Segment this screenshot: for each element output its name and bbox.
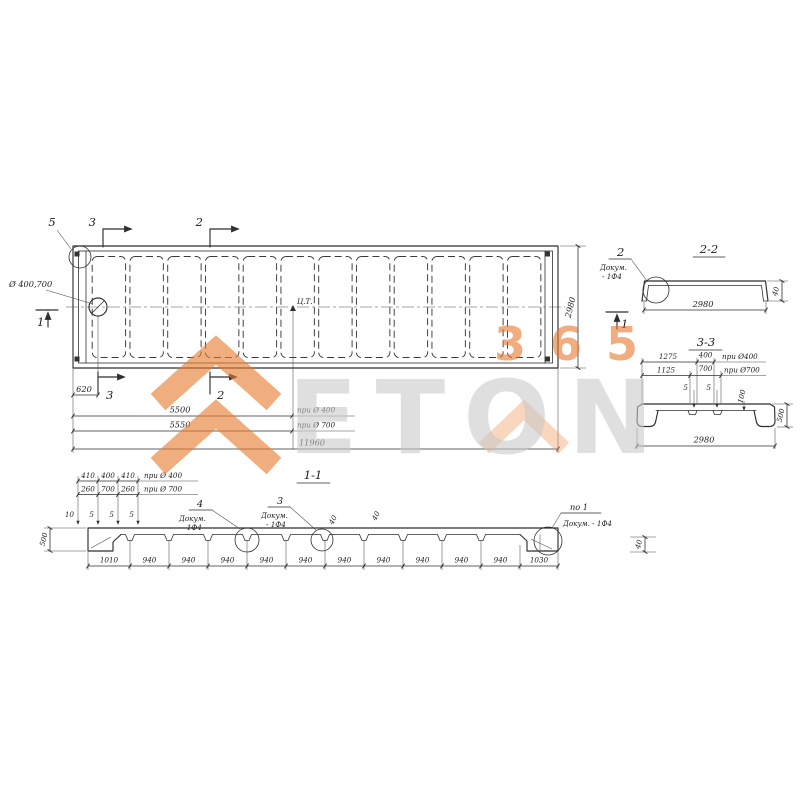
watermark-brand-text: ETON (288, 359, 671, 478)
bottom-dim-2: 940 (182, 556, 196, 565)
section-2-2-title: 2-2 (699, 242, 719, 256)
dim-700-s33: 700 (699, 364, 713, 373)
dim-edge-s22: 40 (770, 285, 782, 298)
bottom-dim-10: 940 (494, 556, 508, 565)
section-2-top-label: 2 (195, 215, 203, 229)
dim-260-a: 260 (80, 485, 95, 494)
dim-500-s11: 500 (38, 531, 50, 547)
section-flag-3-bottom: 3 (98, 372, 124, 402)
dim-edge-s11: 40 (633, 538, 645, 551)
dim-260-b: 260 (120, 485, 135, 494)
callout-4-label: 4 (196, 499, 203, 510)
callout-3-label: 3 (277, 496, 283, 507)
bottom-dim-9: 940 (455, 556, 469, 565)
drawing-svg: Ø 400,700 Ц.Т. 5 3 2 1 (0, 0, 800, 800)
section-3-bottom-label: 3 (106, 388, 113, 402)
section-2-2-callout: 2 Докум. - 1Ф4 (599, 245, 669, 303)
plan-lifting-anchors (75, 252, 551, 362)
callout-3-doc2: - 1Ф4 (266, 520, 286, 529)
dim-5-left-s33: 5 (683, 383, 688, 392)
bottom-dim-5: 940 (299, 556, 313, 565)
section-2-2-profile (642, 281, 768, 301)
blueprint-canvas: Ø 400,700 Ц.Т. 5 3 2 1 (0, 0, 800, 800)
detail-callout-5: 5 (48, 215, 91, 268)
note-d400-s11: при Ø 400 (144, 471, 182, 480)
dim-10: 10 (65, 510, 75, 519)
section-1-left-label: 1 (37, 315, 44, 329)
callout-4-doc2: - 1Ф4 (182, 523, 202, 532)
dim-2980-s22: 2980 (692, 299, 714, 309)
section-flag-2-top: 2 (195, 215, 238, 247)
callout-po1-doc: Докум. - 1Ф4 (562, 519, 612, 528)
dim-620: 620 (76, 384, 92, 394)
callout-2-label: 2 (616, 245, 624, 259)
section-3-top-label: 3 (89, 215, 96, 229)
section-1-1: 1-1 410 400 410 при Ø 400 260 700 260 пр… (38, 468, 656, 570)
callout-2-doc1: Докум. (599, 263, 627, 272)
dim-5-b: 5 (109, 510, 114, 519)
note-d400-s33: при Ø400 (722, 352, 758, 361)
bottom-dim-4: 940 (260, 556, 274, 565)
callout-po1-label: по 1 (570, 502, 588, 512)
section-3-3-title: 3-3 (697, 335, 716, 349)
bottom-dim-3: 940 (221, 556, 235, 565)
note-d700-s11: при Ø 700 (144, 485, 182, 494)
note-d700-s33: при Ø700 (724, 366, 760, 375)
section-2-2: 2-2 2 Докум. - 1Ф4 2980 40 (599, 242, 788, 314)
section-1-1-bottom-dims: 1010 940 940 940 940 940 940 940 940 940… (88, 541, 558, 571)
dim-5500: 5500 (170, 405, 191, 415)
mark-40-b: 40 (369, 509, 382, 523)
watermark-digits-text: 365 (494, 317, 662, 371)
bottom-dim-11: 1030 (530, 556, 549, 565)
dim-700-s11: 700 (101, 485, 115, 494)
section-1-1-profile (88, 528, 558, 551)
dim-400-s11: 400 (100, 471, 115, 480)
hole-diameter-label: Ø 400,700 (8, 279, 52, 289)
bottom-dim-8: 940 (416, 556, 430, 565)
callout-2-doc2: - 1Ф4 (602, 272, 622, 281)
dim-400-s33: 400 (698, 351, 713, 360)
dim-100-s33: 100 (736, 388, 748, 404)
callout-3-doc1: Докум. (260, 511, 288, 520)
mark-40-a: 40 (326, 513, 339, 527)
section-1-1-right-edge-dim: 40 (630, 537, 656, 552)
dim-5-right-s33: 5 (706, 383, 711, 392)
dim-5-c: 5 (129, 510, 134, 519)
section-2-bottom-label: 2 (216, 388, 224, 402)
hole-label-callout: Ø 400,700 (8, 279, 93, 304)
callout-4-doc1: Докум. (178, 514, 206, 523)
section-1-1-left-height-dim: 500 (38, 528, 86, 551)
section-flag-1-left: 1 (36, 310, 58, 329)
bottom-dim-1: 940 (143, 556, 157, 565)
bottom-dim-6: 940 (338, 556, 352, 565)
dim-410-b: 410 (120, 471, 135, 480)
dim-500-s33: 500 (775, 407, 787, 423)
section-flag-3-top: 3 (89, 215, 131, 247)
dim-410-a: 410 (80, 471, 95, 480)
dim-2980-s33: 2980 (693, 435, 715, 445)
watermark: ETON 365 (158, 317, 671, 478)
dim-5-a: 5 (89, 510, 94, 519)
callout-5-label: 5 (48, 215, 55, 229)
detail-circle-3: 3 Докум. - 1Ф4 (260, 496, 333, 551)
centroid-label: Ц.Т. (297, 297, 313, 306)
bottom-dim-0: 1010 (100, 556, 119, 565)
bottom-dim-7: 940 (377, 556, 391, 565)
